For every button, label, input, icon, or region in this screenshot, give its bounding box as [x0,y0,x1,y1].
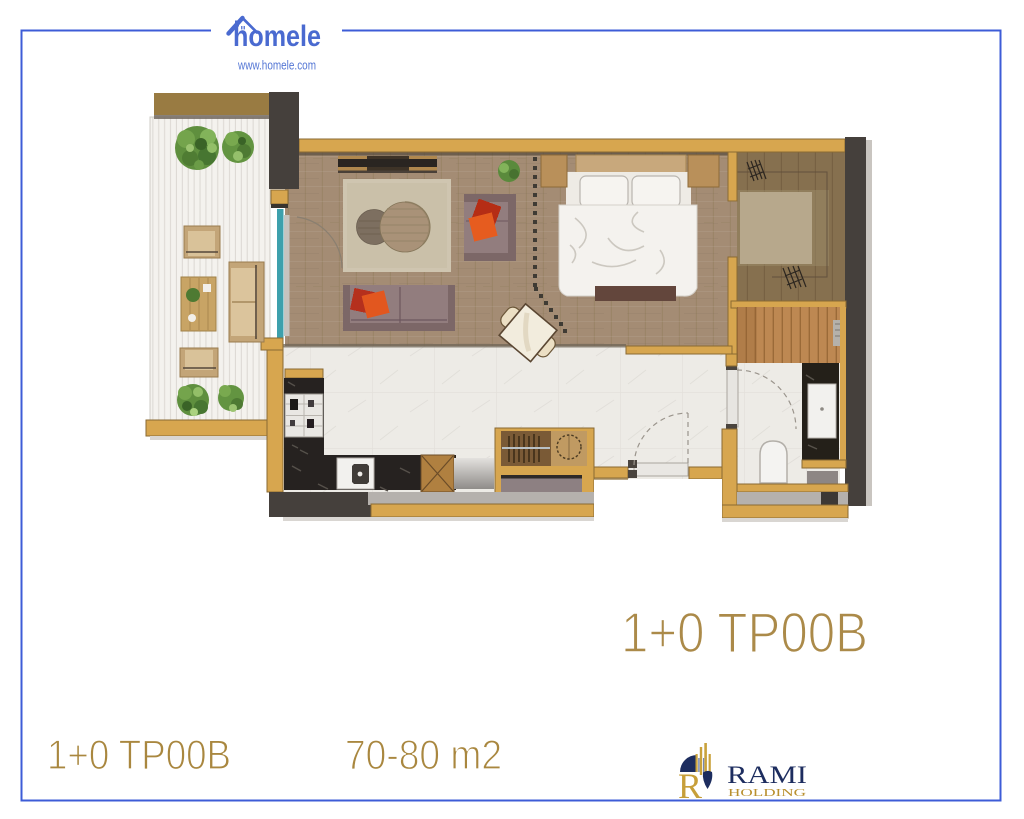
svg-text:www.homele.com: www.homele.com [237,59,316,73]
svg-text:1+0 TP00B: 1+0 TP00B [621,601,868,665]
svg-text:R: R [678,766,702,806]
svg-text:homele: homele [233,20,321,53]
svg-text:HOLDING: HOLDING [728,787,806,799]
svg-text:70-80 m2: 70-80 m2 [345,731,502,778]
svg-text:1+0 TP00B: 1+0 TP00B [47,731,231,778]
svg-text:RAMI: RAMI [727,762,807,789]
